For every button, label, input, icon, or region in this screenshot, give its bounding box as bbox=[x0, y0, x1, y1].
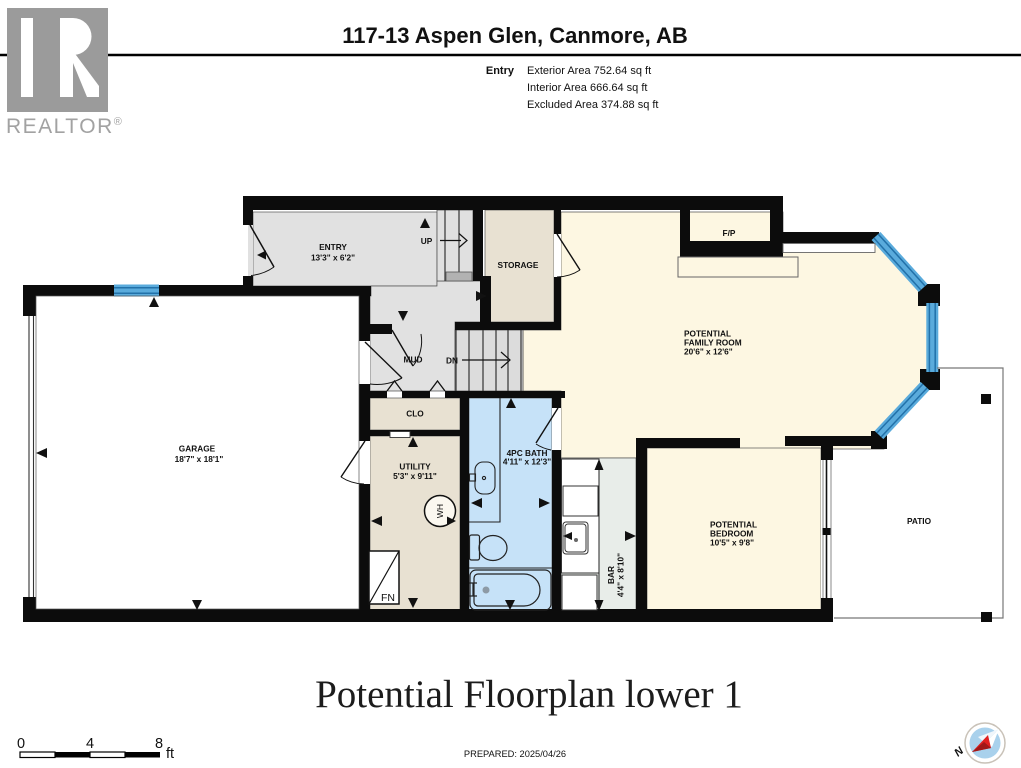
svg-text:UP: UP bbox=[421, 236, 433, 246]
svg-text:8: 8 bbox=[155, 736, 163, 752]
svg-text:F/P: F/P bbox=[723, 228, 736, 238]
svg-text:4'11" x 12'3": 4'11" x 12'3" bbox=[503, 457, 551, 467]
svg-text:Excluded Area 374.88 sq ft: Excluded Area 374.88 sq ft bbox=[527, 99, 658, 111]
svg-text:WH: WH bbox=[435, 504, 445, 518]
svg-text:4: 4 bbox=[86, 736, 94, 752]
svg-text:4'4" x 8'10": 4'4" x 8'10" bbox=[616, 553, 626, 597]
svg-text:PREPARED: 2025/04/26: PREPARED: 2025/04/26 bbox=[464, 749, 566, 759]
svg-text:REALTOR®: REALTOR® bbox=[6, 115, 123, 138]
svg-text:Exterior Area 752.64 sq ft: Exterior Area 752.64 sq ft bbox=[527, 65, 651, 77]
svg-text:PATIO: PATIO bbox=[907, 516, 932, 526]
svg-text:Interior Area 666.64 sq ft: Interior Area 666.64 sq ft bbox=[527, 82, 647, 94]
svg-text:Entry: Entry bbox=[486, 65, 515, 77]
svg-text:GARAGE: GARAGE bbox=[179, 444, 216, 454]
svg-text:DN: DN bbox=[446, 356, 458, 366]
svg-text:BAR: BAR bbox=[606, 566, 616, 584]
svg-text:ft: ft bbox=[166, 746, 174, 762]
svg-text:5'3" x 9'11": 5'3" x 9'11" bbox=[393, 471, 437, 481]
svg-text:MUD: MUD bbox=[404, 355, 423, 365]
svg-text:18'7" x 18'1": 18'7" x 18'1" bbox=[175, 454, 224, 464]
svg-text:10'5" x 9'8": 10'5" x 9'8" bbox=[710, 538, 754, 548]
svg-text:FN: FN bbox=[381, 592, 395, 604]
svg-text:UTILITY: UTILITY bbox=[399, 462, 431, 472]
svg-text:117-13 Aspen Glen, Canmore, AB: 117-13 Aspen Glen, Canmore, AB bbox=[342, 23, 688, 48]
svg-text:CLO: CLO bbox=[406, 409, 424, 419]
svg-text:13'3" x 6'2": 13'3" x 6'2" bbox=[311, 253, 355, 263]
svg-text:0: 0 bbox=[17, 736, 25, 752]
svg-text:20'6" x 12'6": 20'6" x 12'6" bbox=[684, 347, 733, 357]
svg-text:Potential Floorplan lower 1: Potential Floorplan lower 1 bbox=[315, 673, 743, 716]
svg-text:ENTRY: ENTRY bbox=[319, 242, 347, 252]
svg-text:STORAGE: STORAGE bbox=[498, 260, 539, 270]
